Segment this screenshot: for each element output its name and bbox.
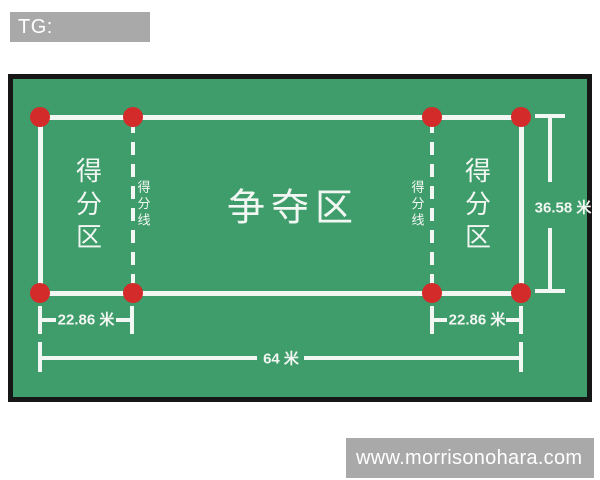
watermark: www.morrisonohara.com	[346, 438, 594, 478]
zone-label-right: 得分区	[459, 157, 496, 256]
dim-right-width-seg-left	[434, 318, 447, 322]
dim-left-width-seg-left	[42, 318, 56, 322]
screenshot-root: TG: MYYJJPP 得分区 得分线 争夺区 得分线 得分区 36.58 米	[0, 0, 600, 480]
corner-marker-dot	[30, 283, 50, 303]
zone-label-left: 得分区	[70, 157, 107, 256]
dim-total-width-seg-left	[42, 356, 257, 360]
corner-marker-dot	[123, 283, 143, 303]
field-diagram: 得分区 得分线 争夺区 得分线 得分区 36.58 米 22.86 米 22.8…	[8, 74, 592, 402]
scoring-line-label-right: 得分线	[408, 180, 427, 230]
zone-label-center: 争夺区	[227, 177, 359, 232]
dim-left-width-seg-right	[116, 318, 130, 322]
court-line-bottom	[38, 291, 524, 296]
corner-tag: TG: MYYJJPP	[10, 12, 150, 42]
dim-right-width-label: 22.86 米	[449, 309, 506, 330]
corner-tag-text: TG: MYYJJPP	[18, 16, 112, 68]
dim-right-width-seg-right	[506, 318, 519, 322]
court-line-right	[519, 115, 524, 296]
scoring-dashed-line-right	[430, 120, 434, 291]
dim-left-width-tick-right	[130, 306, 134, 334]
dim-total-width-tick-right	[519, 342, 523, 372]
court-line-left	[38, 115, 43, 296]
dim-total-width-label: 64 米	[263, 348, 299, 369]
scoring-line-label-left: 得分线	[134, 180, 153, 230]
corner-marker-dot	[422, 107, 442, 127]
corner-marker-dot	[30, 107, 50, 127]
dim-total-width-seg-right	[304, 356, 519, 360]
corner-marker-dot	[123, 107, 143, 127]
dim-height-cap-bottom	[535, 289, 565, 293]
dim-height-label: 36.58 米	[535, 197, 592, 218]
corner-marker-dot	[511, 283, 531, 303]
dim-height-stem-upper	[548, 118, 552, 182]
court-line-top	[38, 115, 524, 120]
dim-left-width-label: 22.86 米	[58, 309, 115, 330]
dim-height-stem-lower	[548, 228, 552, 289]
watermark-text: www.morrisonohara.com	[356, 447, 582, 469]
corner-marker-dot	[422, 283, 442, 303]
dim-right-width-tick-right	[519, 306, 523, 334]
corner-marker-dot	[511, 107, 531, 127]
